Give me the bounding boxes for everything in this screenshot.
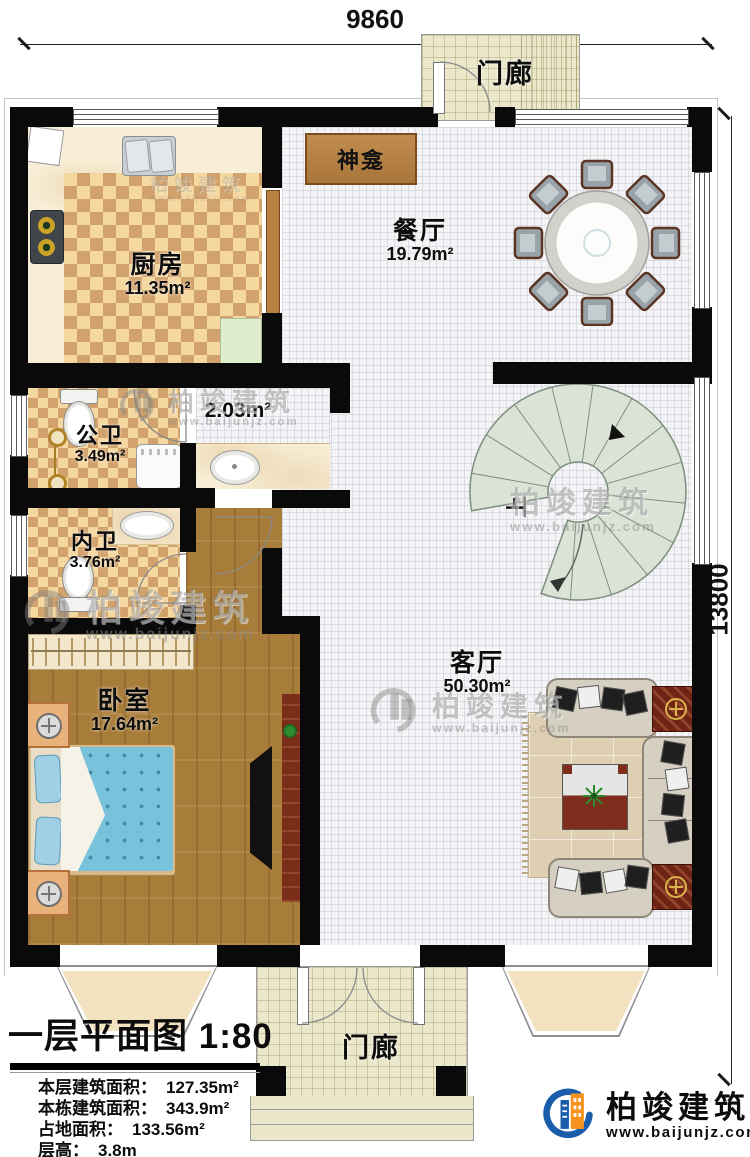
wall: [330, 363, 350, 413]
door-leaf: [297, 967, 309, 1025]
room-name: 公卫: [76, 424, 124, 448]
bay-window-living: [501, 965, 651, 1037]
wall: [262, 127, 282, 188]
wall: [692, 563, 712, 965]
stairs-up-text: 上: [506, 494, 530, 518]
room-label-kitchen: 厨房 11.35m²: [90, 252, 225, 298]
room-name: 餐厅: [393, 218, 447, 245]
sofa-cushion: [664, 818, 689, 843]
title-underline-thin: [10, 1072, 260, 1073]
toilet-tank: [59, 597, 97, 612]
wall: [420, 945, 505, 967]
room-name: 门廊: [342, 1034, 400, 1063]
dimension-tick: [717, 1073, 730, 1086]
room-label-bedroom: 卧室 17.64m²: [82, 688, 167, 734]
bed: [28, 744, 176, 876]
info-label: 层高：: [38, 1140, 89, 1157]
sofa-cushion: [577, 685, 601, 709]
room-name: 客厅: [450, 650, 504, 677]
room-area: 11.35m²: [124, 279, 190, 298]
title-underline: [10, 1063, 260, 1070]
info-label: 本栋建筑面积：: [38, 1098, 157, 1119]
wall: [180, 443, 196, 488]
eave-line-right: [717, 98, 718, 976]
door-leaf: [433, 62, 445, 114]
kitchen-corner-cabinet: [26, 126, 65, 166]
sofa-cushion: [625, 865, 650, 890]
wall: [10, 363, 350, 388]
table-medallion: [665, 698, 687, 720]
room-area: 50.30m²: [443, 677, 510, 696]
stove: [30, 210, 64, 264]
lamp: [36, 881, 62, 907]
info-value: 127.35m²: [166, 1077, 239, 1098]
room-label-porch-bottom: 门廊: [316, 1034, 426, 1063]
room-label-hallway: 2.03m²: [198, 400, 278, 423]
porch-column: [436, 1066, 466, 1096]
pillow: [34, 754, 62, 803]
dimension-width: 9860: [325, 4, 425, 35]
sofa-cushion: [554, 866, 579, 891]
wall: [10, 107, 28, 395]
window: [73, 109, 219, 125]
brand-name: 柏竣建筑: [606, 1092, 750, 1125]
nightstand: [26, 702, 70, 748]
window: [694, 377, 710, 565]
sofa-cushion: [661, 793, 685, 817]
sofa-cushion: [602, 868, 627, 893]
brand-url: www.baijunjz.com: [606, 1125, 750, 1141]
sofa-cushion: [601, 687, 626, 712]
info-value: 133.56m²: [132, 1119, 205, 1140]
nightstand: [26, 870, 70, 916]
brand-logo-icon: [540, 1086, 596, 1147]
wall: [283, 107, 438, 127]
burner: [38, 217, 55, 234]
sofa-cushion: [579, 871, 603, 895]
wall: [648, 945, 712, 967]
room-area: 3.76m²: [70, 554, 121, 571]
info-value: 343.9m²: [166, 1098, 229, 1119]
hallway-sink: [210, 450, 260, 485]
sprayer-cord: [54, 444, 56, 476]
room-area: 17.64m²: [91, 715, 158, 734]
wall: [10, 618, 196, 634]
room-area: 2.03m²: [205, 400, 272, 423]
info-row: 本栋建筑面积： 343.9m²: [8, 1098, 288, 1119]
wall: [493, 362, 712, 384]
wardrobe-rod: [31, 650, 191, 652]
wall: [262, 313, 282, 363]
info-row: 层高： 3.8m: [8, 1140, 288, 1157]
dimension-tick: [717, 107, 730, 120]
door-leaf: [413, 967, 425, 1025]
pillow: [34, 816, 62, 865]
eave-line-left: [4, 98, 5, 976]
window: [11, 515, 27, 577]
dining-table-set: [513, 158, 681, 326]
eave-line-top: [4, 98, 718, 99]
table-corner: [618, 765, 627, 774]
plant-icon: [581, 783, 607, 809]
table-medallion: [665, 876, 687, 898]
stairs-direction-label: 上: [506, 492, 530, 520]
room-label-porch-top: 门廊: [450, 60, 560, 89]
wall: [10, 945, 60, 967]
faucet-dot: [232, 464, 237, 469]
window: [515, 109, 689, 125]
info-value: 3.8m: [98, 1140, 137, 1157]
room-label-dining: 餐厅 19.79m²: [355, 218, 485, 264]
sofa-cushion: [622, 690, 648, 716]
wall: [217, 945, 300, 967]
plan-title: 一层平面图 1:80: [8, 1008, 288, 1059]
title-block: 一层平面图 1:80 本层建筑面积： 127.35m² 本栋建筑面积： 343.…: [8, 1008, 288, 1157]
room-area: 19.79m²: [386, 245, 453, 264]
shrine-label: 神龛: [337, 143, 385, 175]
sofa-cushion: [552, 686, 578, 712]
spiral-staircase: [462, 380, 702, 610]
shrine-cabinet: 神龛: [305, 133, 417, 185]
floor-plan: 9860 13800 神龛: [0, 0, 750, 1157]
dimension-line-top: [20, 44, 712, 45]
table-corner: [563, 765, 572, 774]
room-label-public-bath: 公卫 3.49m²: [58, 424, 142, 465]
lamp: [36, 713, 62, 739]
info-label: 本层建筑面积：: [38, 1077, 157, 1098]
window: [11, 395, 27, 457]
sofa-cushion: [660, 740, 685, 765]
room-name: 厨房: [130, 252, 184, 279]
wall: [180, 507, 196, 552]
wall: [272, 490, 350, 508]
wardrobe: [28, 634, 194, 670]
room-label-ensuite-bath: 内卫 3.76m²: [53, 530, 137, 571]
wall: [10, 488, 215, 508]
tv: [250, 746, 272, 870]
kitchen-door-leaf: [266, 190, 280, 316]
sink-basin: [124, 139, 150, 173]
wardrobe-hangers: [32, 638, 190, 666]
sink-basin: [148, 139, 174, 173]
cabinet-plant: [283, 724, 297, 738]
info-label: 占地面积：: [38, 1119, 123, 1140]
info-row: 本层建筑面积： 127.35m²: [8, 1077, 288, 1098]
room-area: 3.49m²: [75, 448, 126, 465]
room-name: 卧室: [97, 688, 151, 715]
wall: [300, 634, 320, 945]
kitchen-sink: [122, 136, 176, 176]
room-label-living: 客厅 50.30m²: [424, 650, 530, 696]
fridge: [220, 318, 262, 364]
wall: [217, 107, 283, 127]
info-row: 占地面积： 133.56m²: [8, 1119, 288, 1140]
wall: [692, 117, 712, 172]
wall: [495, 107, 515, 127]
wall: [262, 616, 320, 634]
washer-controls: [141, 449, 177, 455]
window: [694, 172, 710, 309]
burner: [38, 239, 55, 256]
room-name: 内卫: [71, 530, 119, 554]
washing-machine: [136, 444, 182, 489]
sofa-cushion: [665, 767, 690, 792]
room-name: 门廊: [476, 60, 534, 89]
brand-footer: 柏竣建筑 www.baijunjz.com: [540, 1086, 750, 1147]
